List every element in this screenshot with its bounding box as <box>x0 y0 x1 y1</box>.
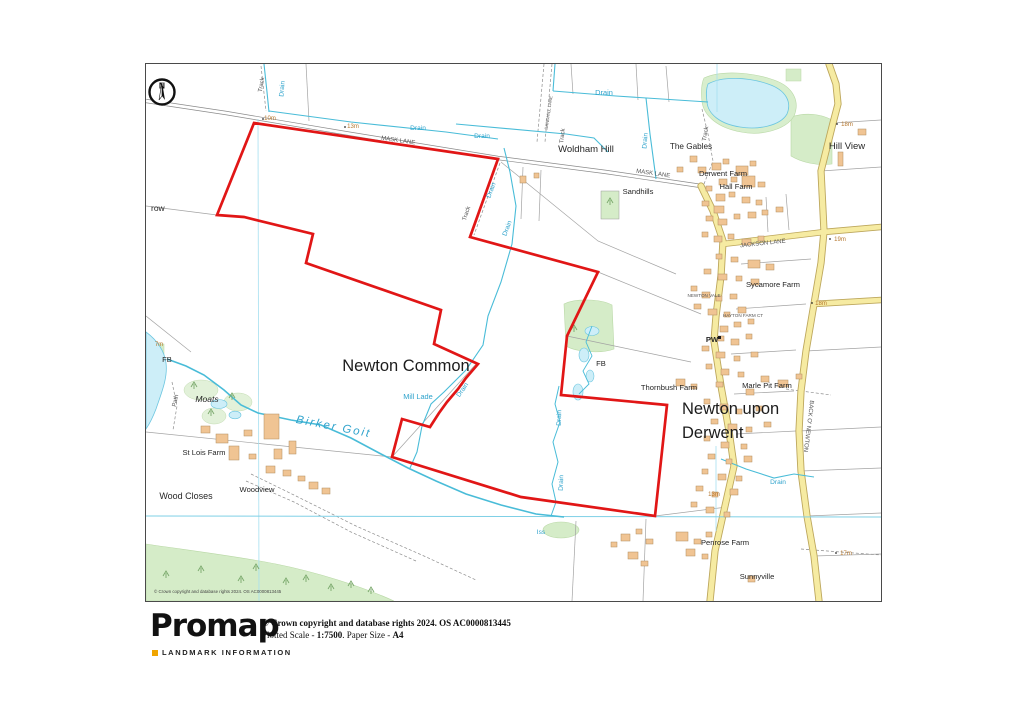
label-drain-4: Drain <box>278 80 286 97</box>
page: Newton Common Newton upon Derwent Woldha… <box>0 0 1024 724</box>
label-woodview: Woodview <box>240 485 275 494</box>
label-drain-7: Drain <box>502 220 514 238</box>
label-19m: 19m <box>834 237 846 243</box>
label-sandhills: Sandhills <box>623 187 654 196</box>
vegetation-areas <box>146 69 832 601</box>
footer-copyright: © Crown copyright and database rights 20… <box>262 617 511 641</box>
label-drain-9: Drain <box>556 410 564 426</box>
label-row: row <box>151 203 166 213</box>
label-penrose-farm: Penrose Farm <box>701 538 749 547</box>
label-pw: PW <box>706 335 719 344</box>
footer-copyright-line2: Plotted Scale - 1:7500. Paper Size - A4 <box>262 629 511 641</box>
landmark-dot-icon <box>152 650 158 656</box>
label-drain-6: Drain <box>486 182 498 200</box>
landmark-subtitle-text: LANDMARK INFORMATION <box>162 648 292 657</box>
north-arrow-icon: N <box>150 80 175 105</box>
drains <box>146 64 881 601</box>
label-drain-5: Drain <box>641 132 649 149</box>
label-hall-farm: Hall Farm <box>720 182 753 191</box>
map-canvas[interactable]: Newton Common Newton upon Derwent Woldha… <box>145 63 882 602</box>
label-wood-closes: Wood Closes <box>159 491 213 501</box>
label-sycamore-farm: Sycamore Farm <box>746 280 800 289</box>
label-derwent-farm: Derwent Farm <box>699 169 747 178</box>
footer-copyright-line1: © Crown copyright and database rights 20… <box>262 617 511 629</box>
landmark-subtitle: LANDMARK INFORMATION <box>152 648 292 657</box>
label-newton-vale: NEWTON VALE <box>687 293 720 298</box>
label-moats: Moats <box>195 394 219 404</box>
label-path: Path <box>172 394 180 407</box>
label-track-2: Track <box>559 127 567 143</box>
label-13m-2: 13m <box>708 492 720 498</box>
label-thornbush-farm: Thornbush Farm <box>641 383 697 392</box>
label-track-1: Track <box>258 76 267 93</box>
label-10m: 10m <box>264 116 276 122</box>
label-derwent: Derwent <box>682 424 744 442</box>
label-hayton-farm-ct: HAYTON FARM CT <box>723 313 763 318</box>
label-sandhill-lane: SANDHILL LANE <box>544 96 554 130</box>
label-mill-lade: Mill Lade <box>403 392 433 401</box>
label-drain-1: Drain <box>410 125 426 132</box>
label-18m-2: 18m <box>815 301 827 307</box>
road-labels: MASK LANE MASK LANE JACKSON LANE BACK O'… <box>172 76 814 452</box>
label-fb-2: FB <box>162 355 172 364</box>
road-mask-lane <box>146 101 701 186</box>
label-sunnyville: Sunnyville <box>740 572 775 581</box>
label-woldham-hill: Woldham Hill <box>558 144 614 155</box>
field-boundaries <box>146 64 881 601</box>
label-st-lois-farm: St Lois Farm <box>182 448 225 457</box>
label-birker-goit: Birker Goit <box>295 414 372 440</box>
promap-logo: Promap <box>150 608 279 644</box>
label-drain-11: Drain <box>770 479 786 486</box>
label-17m: 17m <box>840 551 852 557</box>
tracks-dashed <box>172 64 881 580</box>
inmap-copyright: © Crown copyright and database rights 20… <box>154 589 282 594</box>
label-newton-common: Newton Common <box>342 357 469 375</box>
label-fb: FB <box>596 359 606 368</box>
pw-symbol <box>718 336 721 339</box>
label-18m-1: 18m <box>841 122 853 128</box>
label-track-3: Track <box>462 205 473 222</box>
label-iss: Iss <box>537 529 546 536</box>
label-7m: 7m <box>155 342 163 348</box>
map-svg: Newton Common Newton upon Derwent Woldha… <box>146 64 881 601</box>
label-drain-3: Drain <box>595 88 613 97</box>
label-marle-pit-farm: Marle Pit Farm <box>742 381 792 390</box>
label-hill-view: Hill View <box>829 141 865 152</box>
label-drain-10: Drain <box>558 475 566 491</box>
label-the-gables: The Gables <box>670 142 712 151</box>
label-drain-2: Drain <box>474 133 490 140</box>
label-newton-upon: Newton upon <box>682 400 779 418</box>
label-13m-1: 13m <box>347 124 359 130</box>
